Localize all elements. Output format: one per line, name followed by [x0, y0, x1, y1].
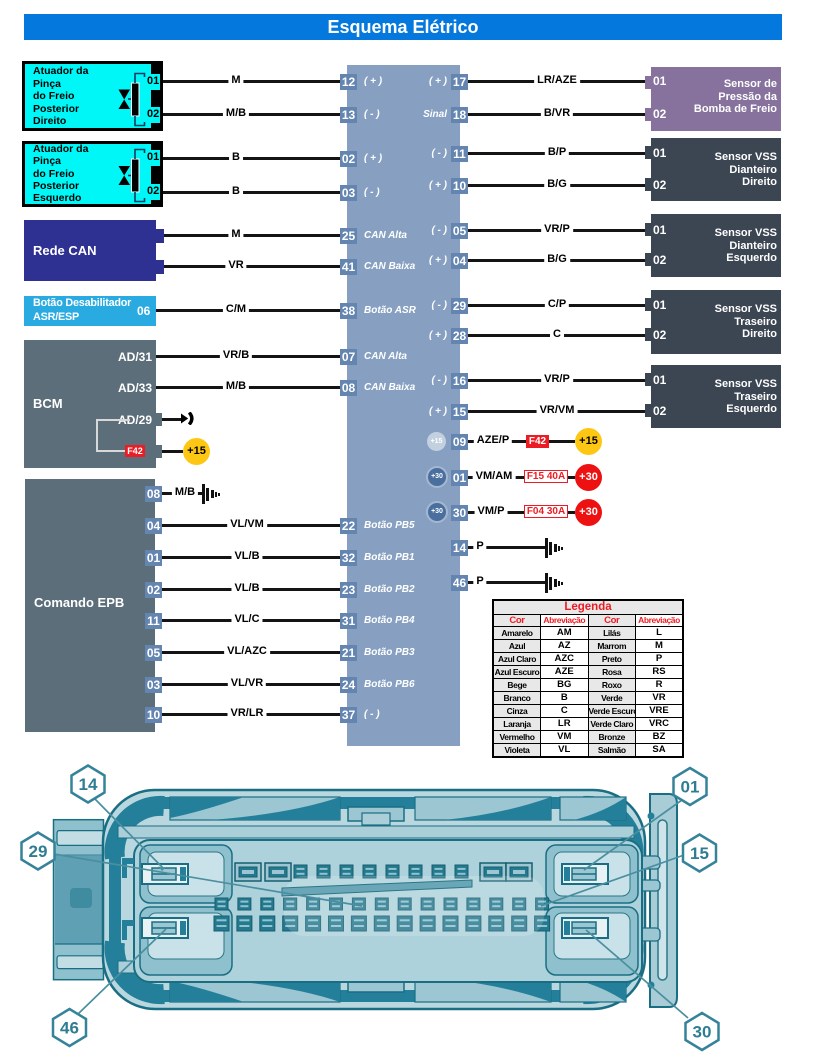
svg-text:30: 30 [693, 1023, 712, 1042]
svg-text:14: 14 [79, 775, 98, 794]
svg-text:46: 46 [60, 1019, 79, 1038]
svg-text:01: 01 [681, 778, 700, 797]
svg-text:29: 29 [29, 842, 48, 861]
svg-text:15: 15 [690, 844, 709, 863]
